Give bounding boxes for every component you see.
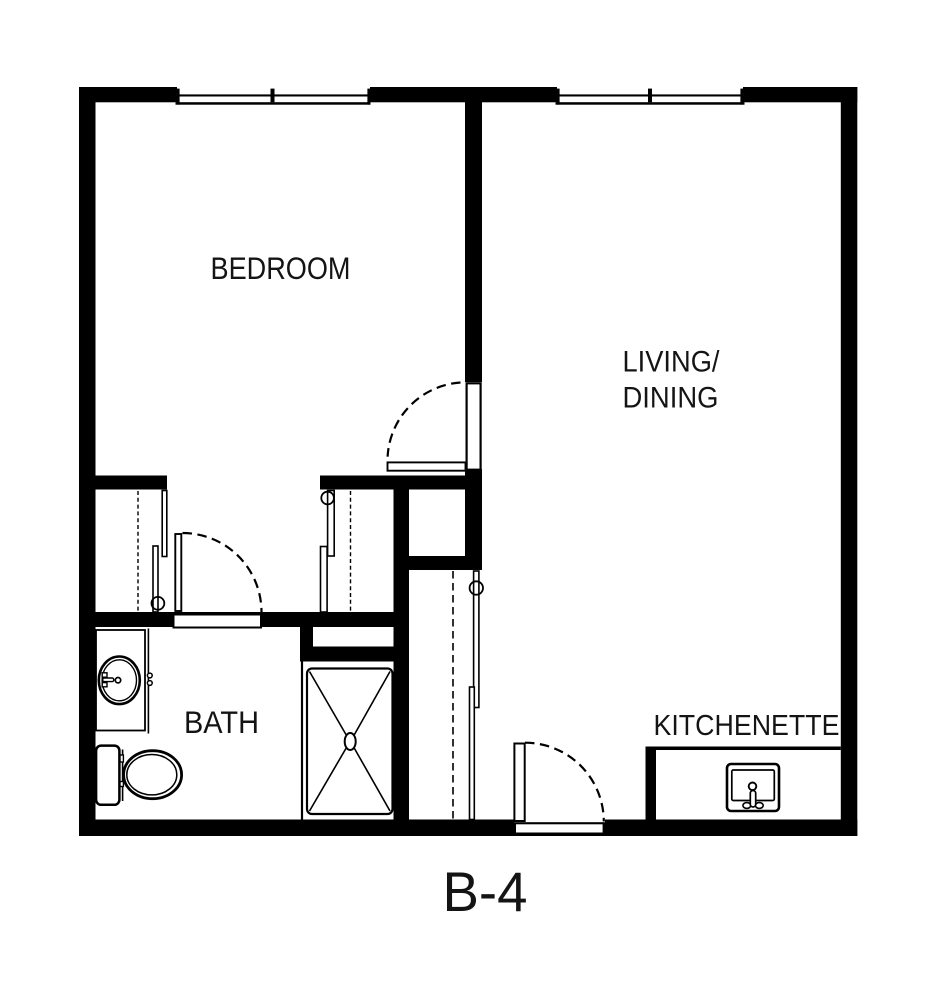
svg-text:B-4: B-4	[443, 861, 528, 923]
svg-text:DINING: DINING	[623, 382, 719, 415]
svg-text:KITCHENETTE: KITCHENETTE	[654, 710, 840, 742]
svg-text:LIVING/: LIVING/	[623, 346, 721, 379]
svg-text:BATH: BATH	[184, 704, 259, 740]
svg-text:BEDROOM: BEDROOM	[211, 250, 351, 286]
